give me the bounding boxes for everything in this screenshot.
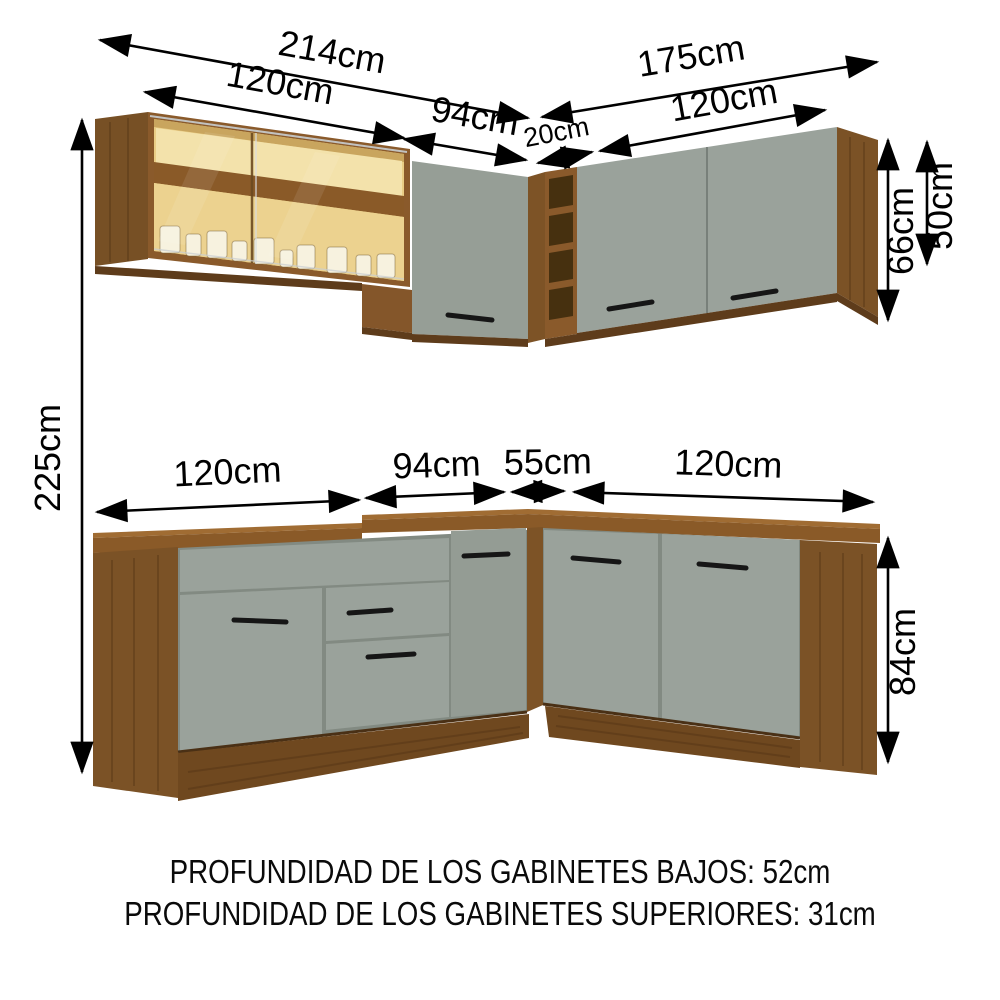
drawer-2 (326, 636, 449, 730)
door-handle (234, 620, 286, 622)
lower-corner-post (527, 527, 543, 712)
dim-lower-corner-arrow (512, 491, 564, 492)
product-dimension-diagram: 214cm 175cm 120cm 94cm 20cm 120cm 66cm 5… (0, 0, 1000, 1000)
corner-step-filler (362, 284, 412, 333)
dim-total-height-label: 225cm (27, 404, 68, 512)
dim-upper-corner-arrow (404, 139, 526, 160)
upper-corner-door (412, 161, 528, 339)
dim-lower-left-corner-label: 94cm (392, 442, 481, 486)
upper-right-end-panel (837, 127, 878, 317)
shelf-opening (549, 212, 573, 246)
dim-glass-height-label: 50cm (919, 162, 960, 250)
dim-upper-corner-label: 94cm (428, 88, 522, 143)
dim-lower-left-arrow (97, 500, 359, 512)
shelf-opening (549, 175, 573, 209)
door-handle (464, 554, 508, 556)
dim-upper-right-total-label: 175cm (634, 26, 747, 84)
dim-upper-height-label: 66cm (880, 187, 921, 275)
jar (377, 254, 395, 278)
depth-notes: PROFUNDIDAD DE LOS GABINETES BAJOS: 52cm… (124, 854, 876, 933)
upper-corner-shelf-unit (545, 167, 577, 347)
dim-corner-shelf-label: 20cm (521, 111, 592, 153)
lower-cabinets (93, 509, 880, 801)
upper-corner-cabinet-94 (412, 161, 528, 347)
drawer-handle (349, 610, 391, 613)
upper-cabinets (95, 112, 878, 347)
drawer-handle (368, 654, 414, 657)
lower-right-end-panel (800, 540, 877, 775)
kitchen-render: 214cm 175cm 120cm 94cm 20cm 120cm 66cm 5… (0, 0, 1000, 1000)
jar (327, 247, 347, 273)
dim-lower-left-label: 120cm (173, 449, 283, 495)
dim-corner-shelf-arrow (538, 152, 592, 163)
upper-right-cabinet (577, 127, 878, 342)
lower-left-end-panel (93, 547, 178, 798)
jar (297, 245, 315, 269)
shelf-opening (549, 286, 573, 320)
dim-lower-corner-label: 55cm (503, 440, 592, 483)
lower-right-cabinets (543, 528, 877, 775)
lower-left-door (180, 588, 322, 751)
dim-lower-right-arrow (574, 492, 873, 502)
depth-note-upper: PROFUNDIDAD DE LOS GABINETES SUPERIORES:… (124, 896, 876, 933)
dim-lower-right-label: 120cm (674, 441, 783, 486)
lower-left-cabinets (93, 528, 529, 801)
depth-note-base: PROFUNDIDAD DE LOS GABINETES BAJOS: 52cm (170, 854, 831, 891)
upper-glass-cabinet (95, 112, 412, 340)
dim-base-height-label: 84cm (882, 608, 923, 696)
jar (207, 231, 227, 258)
shelf-opening (549, 249, 573, 283)
dim-lower-left-corner-arrow (366, 492, 504, 498)
upper-left-end-panel (95, 112, 148, 266)
upper-corner-post (528, 172, 545, 343)
